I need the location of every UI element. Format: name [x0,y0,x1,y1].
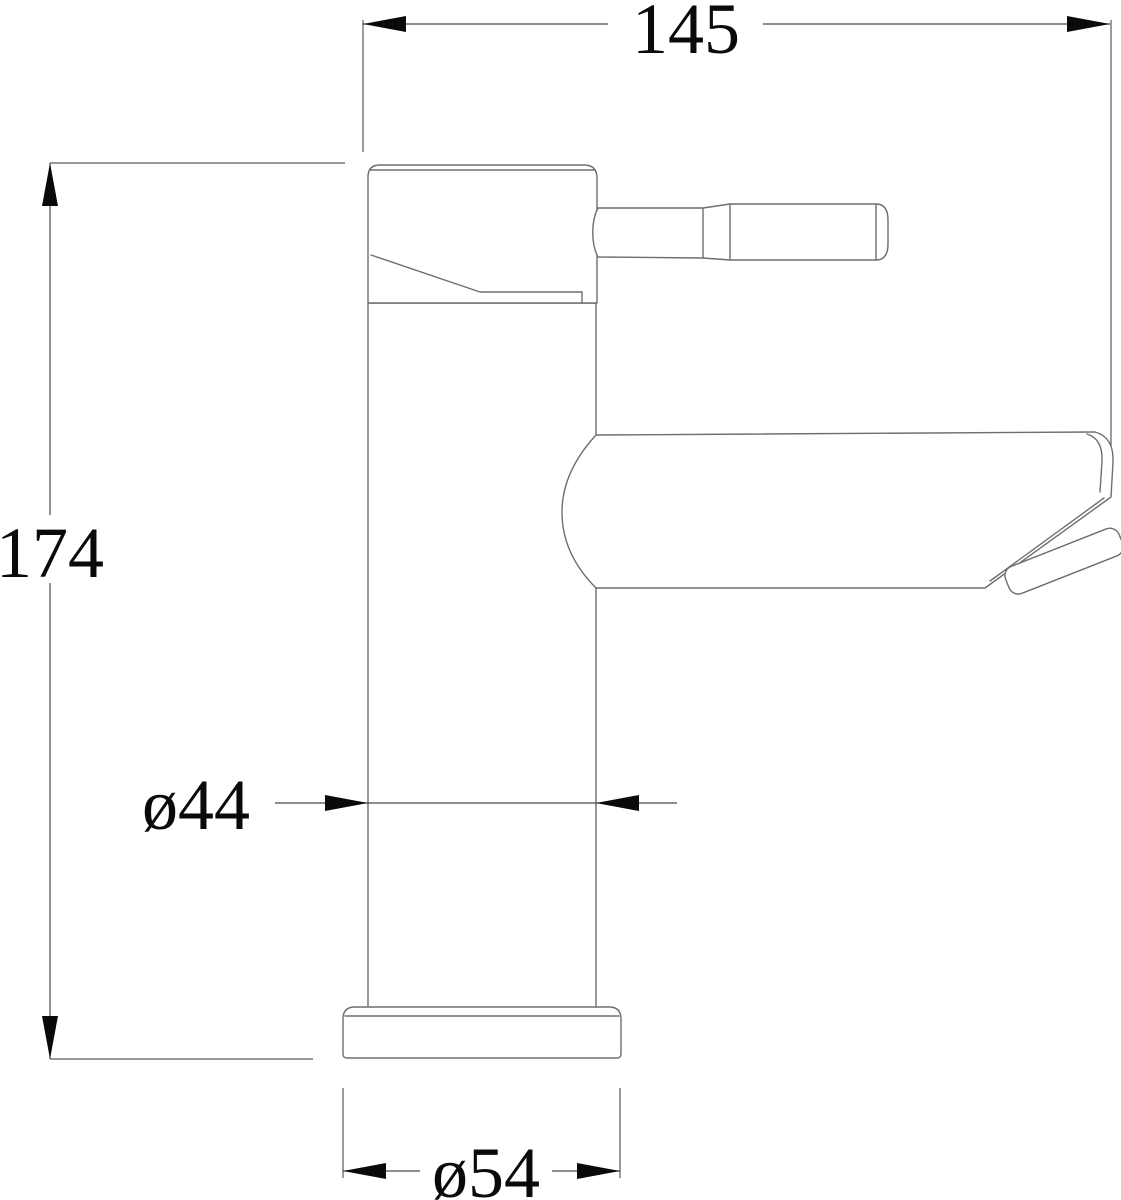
faucet-head [368,165,597,303]
faucet-handle [593,204,888,260]
dimension-base-diameter: ø54 [343,1133,620,1200]
dimension-overall-width: 145 [363,0,1110,69]
dim-label-body-diameter: ø44 [142,765,250,845]
faucet-outline [343,165,1121,1058]
head-body [368,165,597,303]
base-body [343,1007,621,1058]
arrowhead-up-icon [42,163,58,206]
arrowhead-left-icon [363,16,406,32]
dimension-body-diameter: ø44 [142,765,677,845]
arrowhead-right-icon [577,1163,620,1179]
dim-label-overall-width: 145 [632,0,740,69]
technical-drawing-canvas: 145 174 ø44 [0,0,1121,1200]
faucet-base [343,1007,621,1058]
faucet-body [368,303,596,1007]
faucet-dimension-drawing: 145 174 ø44 [0,0,1121,1200]
dimension-overall-height: 174 [0,163,104,1059]
handle-body [593,204,888,260]
arrowhead-left-icon [343,1163,386,1179]
faucet-spout [562,432,1121,597]
arrowhead-down-icon [42,1016,58,1059]
arrowhead-left-icon [596,795,639,811]
dim-label-overall-height: 174 [0,513,104,593]
dim-label-base-diameter: ø54 [432,1133,540,1200]
arrowhead-right-icon [325,795,368,811]
arrowhead-right-icon [1067,16,1110,32]
